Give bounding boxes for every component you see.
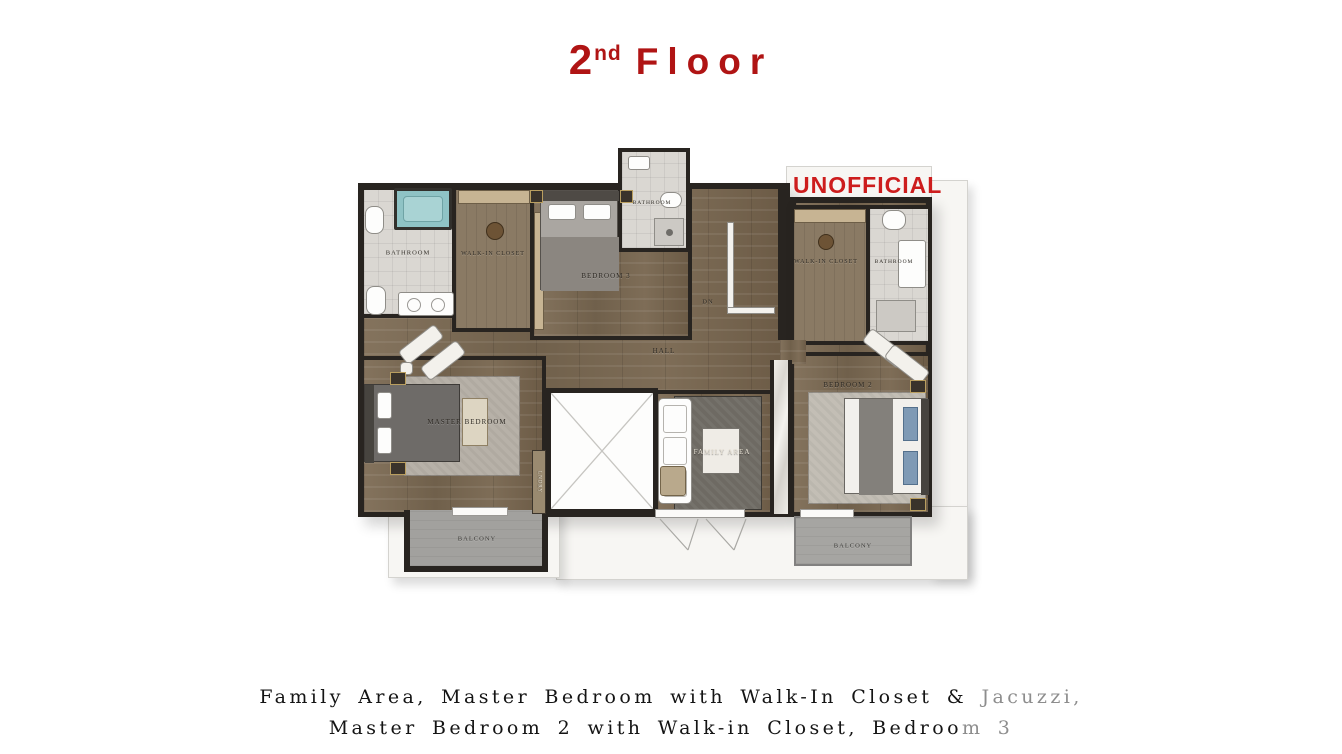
balcony-right	[794, 516, 912, 566]
room-label-family-area: FAMILY AREA	[694, 448, 751, 456]
closet-shelf-right-top	[794, 209, 866, 223]
door-bedroom2-balcony	[800, 509, 854, 518]
stairs-dn-label: DN	[702, 299, 713, 306]
toilet-master-bath-bottom	[366, 286, 386, 315]
closet-ottoman-right	[818, 234, 834, 250]
room-label-hall: HALL	[653, 347, 676, 355]
stairs-railing-horizontal	[727, 307, 775, 314]
jacuzzi-tub	[394, 188, 452, 230]
room-label-master-bathroom: BATHROOM	[386, 250, 430, 257]
open-void	[546, 388, 658, 514]
sofa-cushion-2	[663, 437, 687, 465]
bedroom-3-headboard	[541, 191, 619, 201]
floor-word: Floor	[636, 41, 773, 82]
room-label-bedroom-2: BEDROOM 2	[823, 381, 872, 389]
stairs-wall	[778, 186, 786, 340]
caption: Family Area, Master Bedroom with Walk-In…	[0, 682, 1342, 744]
master-bed-pillow-top	[377, 392, 392, 419]
bedroom-3-pillow-left	[548, 204, 576, 220]
room-walk-in-closet-right	[790, 205, 870, 345]
caption-line-2-main: Master Bedroom 2 with Walk-in Closet, Be…	[329, 717, 962, 739]
bedroom-2-nightstand-bottom	[910, 498, 926, 511]
door-family-terrace	[655, 509, 745, 518]
family-armchair	[660, 466, 686, 496]
sink-basin-left	[407, 298, 421, 312]
room-label-bathroom-small: BATHROOM	[633, 200, 672, 206]
sink-small-bathroom	[628, 156, 650, 170]
bedroom-2-pillow-bottom	[903, 451, 918, 485]
room-label-walk-in-closet-right: WALK-IN CLOSET	[794, 259, 858, 265]
stairs-railing-vertical	[727, 222, 734, 314]
bedroom-2-blanket	[859, 399, 893, 495]
caption-line-2: Master Bedroom 2 with Walk-in Closet, Be…	[0, 713, 1342, 744]
shower-drain	[666, 229, 673, 236]
shower-small-bathroom	[654, 218, 684, 246]
bedroom-3-blanket	[541, 237, 619, 291]
bedroom-2-pillow-top	[903, 407, 918, 441]
master-nightstand-bottom	[390, 462, 406, 475]
door-swing-marks	[654, 518, 750, 556]
sofa-cushion-1	[663, 405, 687, 433]
caption-line-1-main: Family Area, Master Bedroom with Walk-In…	[259, 686, 981, 708]
room-label-walk-in-closet-left: WALK-IN CLOSET	[461, 251, 525, 257]
bedroom-3-nightstand-left	[530, 190, 543, 203]
tv-marble-wall	[770, 360, 792, 514]
bedroom-2-bed	[844, 398, 928, 494]
room-label-balcony-left: BALCONY	[458, 536, 496, 543]
toilet-bathroom-right	[882, 210, 906, 230]
toilet-master-bath-top	[365, 206, 384, 234]
room-label-bedroom-3: BEDROOM 3	[581, 272, 630, 280]
closet-shelf-left-top	[458, 190, 530, 204]
room-walk-in-closet-left	[452, 186, 534, 332]
master-bed-pillow-bottom	[377, 427, 392, 454]
bedroom-2-nightstand-top	[910, 380, 926, 393]
room-label-laundry: LNDRY	[537, 471, 542, 493]
shower-bathroom-right	[876, 300, 916, 332]
page-title: 2ndFloor	[0, 36, 1342, 84]
room-label-master-bedroom: MASTER BEDROOM	[427, 418, 506, 426]
room-label-bathroom-right: BATHROOM	[875, 259, 914, 265]
bedroom-3-nightstand-right	[620, 190, 633, 203]
master-nightstand-top	[390, 372, 406, 385]
caption-line-1-muted: Jacuzzi,	[981, 686, 1082, 708]
jacuzzi-basin	[403, 196, 443, 222]
floor-plan-page: 2ndFloor BATHROOM WALK-IN CLOSET BEDROOM…	[0, 0, 1342, 754]
closet-ottoman-left	[486, 222, 504, 240]
bedroom-2-headboard	[921, 399, 929, 495]
unofficial-watermark: UNOFFICIAL	[793, 172, 942, 199]
void-x-mark	[551, 393, 653, 509]
sink-basin-right	[431, 298, 445, 312]
floor-ordinal: nd	[594, 42, 622, 65]
bedroom-3-pillow-right	[583, 204, 611, 220]
door-master-balcony	[452, 507, 508, 516]
caption-line-1: Family Area, Master Bedroom with Walk-In…	[0, 682, 1342, 713]
master-bed-headboard	[365, 385, 374, 463]
room-label-balcony-right: BALCONY	[834, 543, 872, 550]
double-sink-vanity	[398, 292, 454, 316]
floor-number: 2	[569, 36, 594, 83]
caption-line-2-muted: m 3	[962, 717, 1013, 739]
